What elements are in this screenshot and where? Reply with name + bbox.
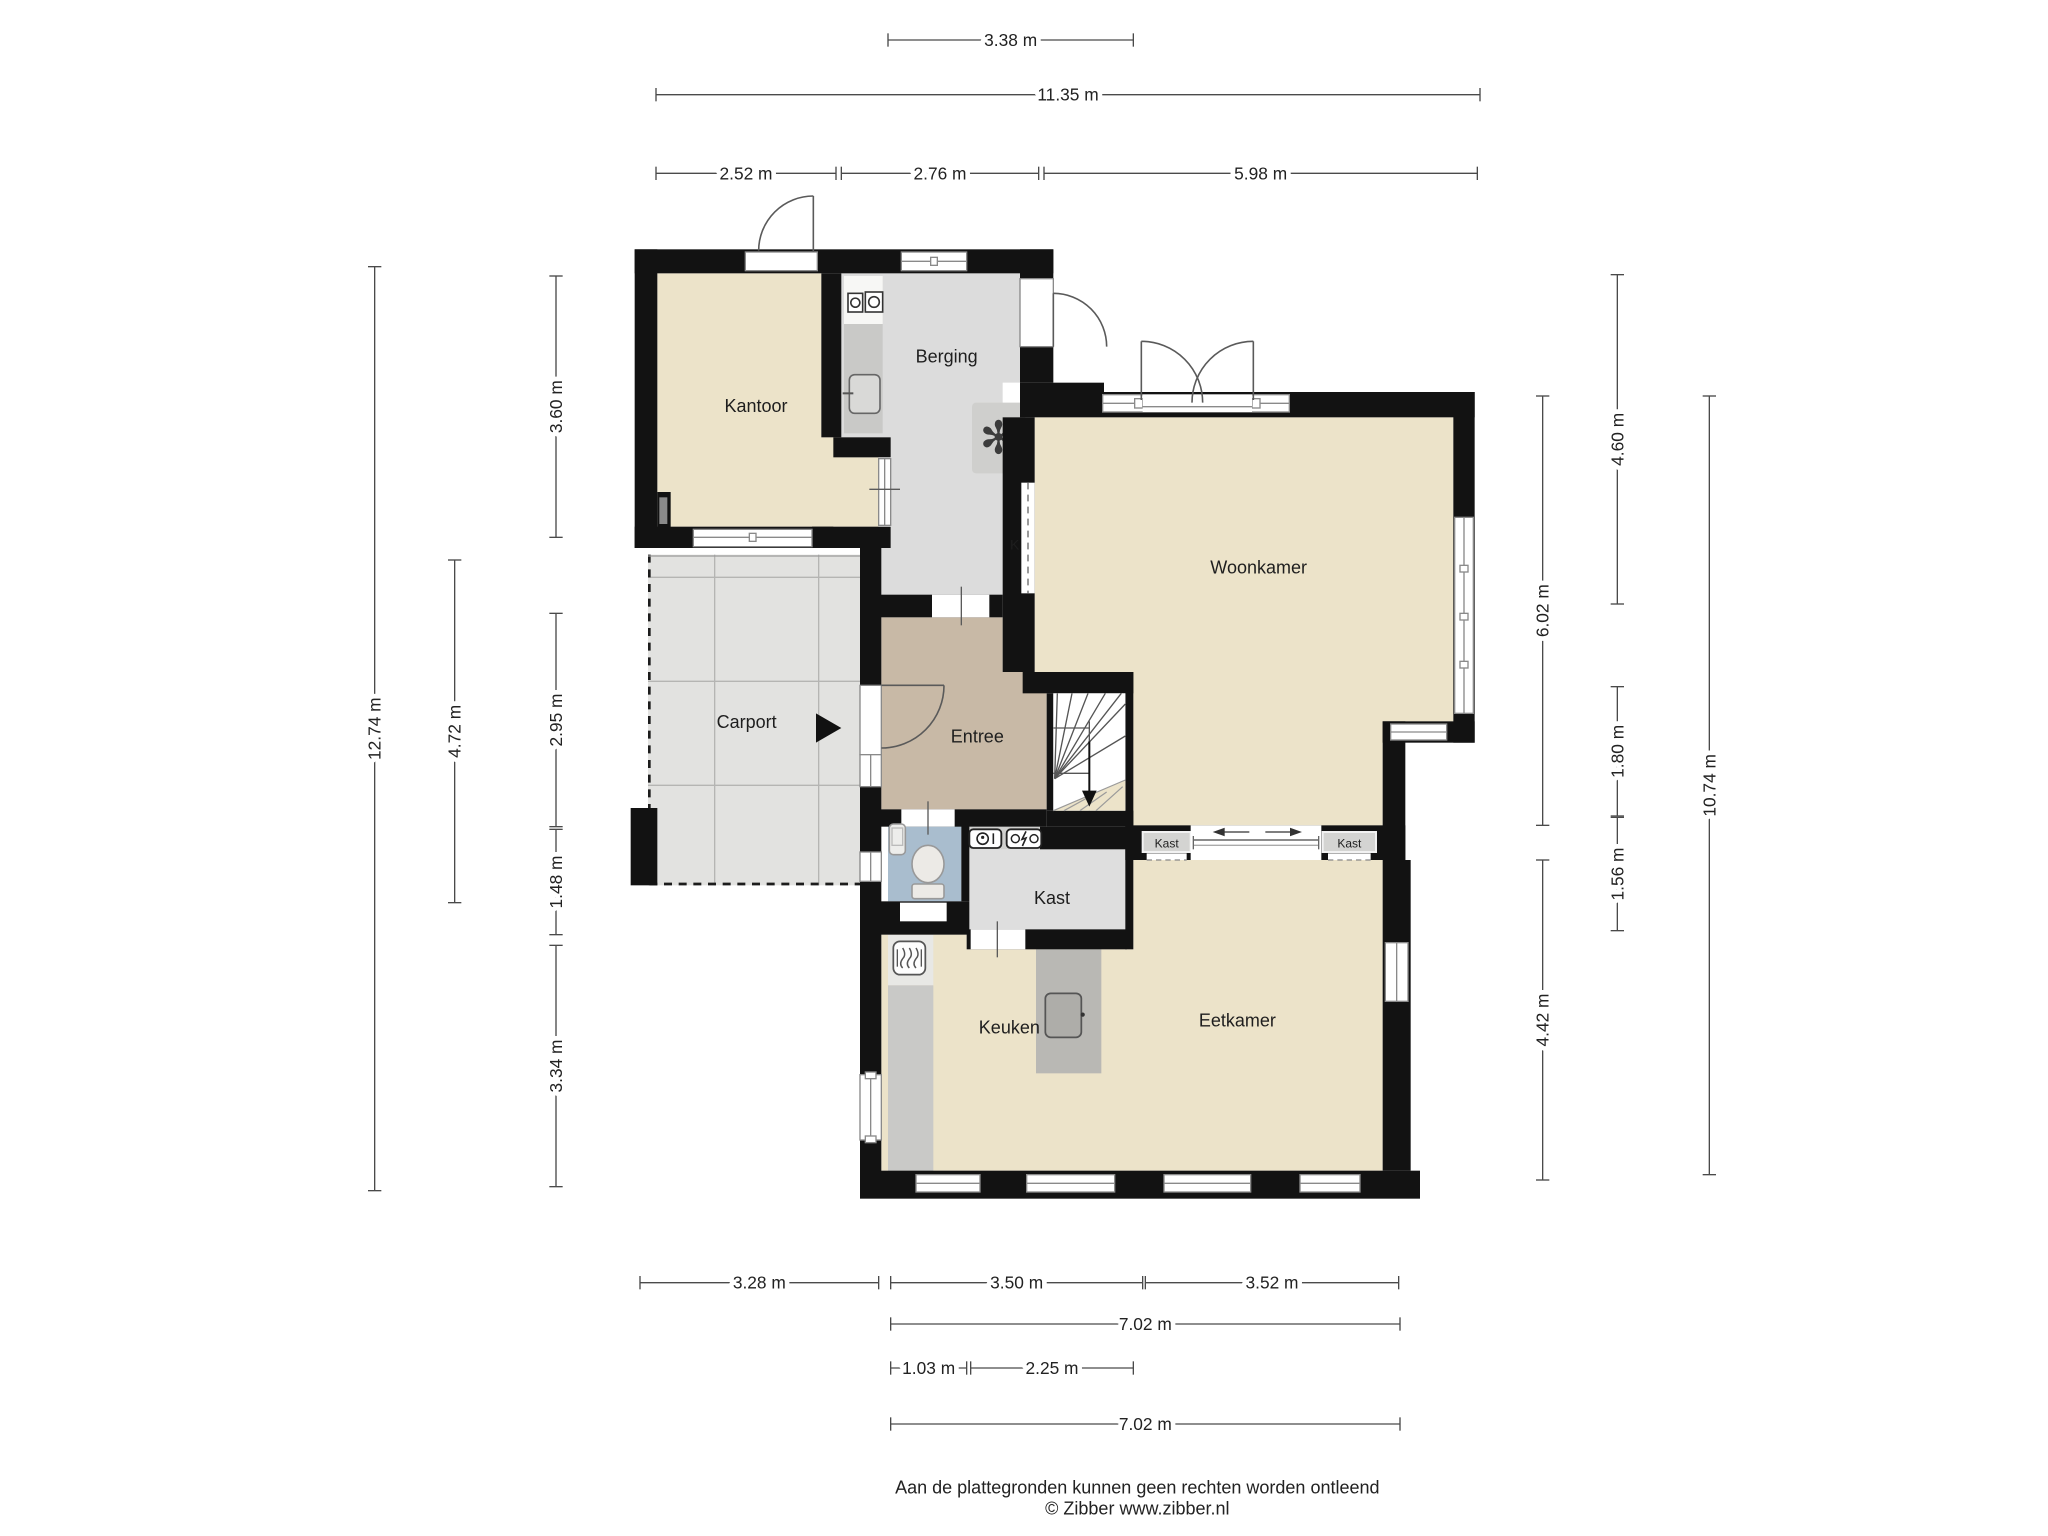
eetkamer-east-window — [1385, 943, 1408, 1002]
wall-woonkamer-top-left — [1020, 383, 1104, 418]
washer-icon — [848, 293, 863, 312]
footer-disclaimer: Aan de plattegronden kunnen geen rechten… — [895, 1477, 1379, 1497]
wall-left-kantoor — [635, 249, 658, 548]
footer-copyright: © Zibber www.zibber.nl — [1045, 1499, 1229, 1519]
wall-block-southeast-kantoor — [812, 527, 891, 548]
dimension-label: 2.76 m — [914, 163, 967, 183]
entree-label: Entree — [951, 727, 1004, 747]
eetkamer-south-window — [1164, 1175, 1251, 1192]
keuken-west-window — [860, 1072, 881, 1143]
kast-niche-right-label: Kast — [1337, 836, 1362, 850]
woonkamer-label: Woonkamer — [1210, 557, 1307, 577]
dimension-label: 4.60 m — [1607, 413, 1627, 466]
dimension-label: 3.28 m — [733, 1273, 786, 1293]
kast-niche-left-label: Kast — [1155, 836, 1180, 850]
dimension-label: 7.02 m — [1119, 1314, 1172, 1334]
front-sidelight-window — [860, 755, 881, 787]
kantoor-south-window — [693, 529, 812, 546]
wall-stairs-left — [1047, 693, 1054, 810]
dimension-label: 3.52 m — [1246, 1273, 1299, 1293]
dimension-label: 7.02 m — [1119, 1414, 1172, 1434]
k-closet-label: K — [1010, 536, 1020, 552]
dimension-label: 4.72 m — [445, 705, 465, 758]
staircase — [1053, 693, 1125, 810]
dimension-label: 11.35 m — [1037, 85, 1098, 105]
k-closet-hatch — [1021, 483, 1034, 594]
wall-jog — [833, 437, 890, 457]
dimension-label: 1.56 m — [1607, 848, 1627, 901]
kast-niche-left: Kast — [1143, 832, 1191, 860]
keuken-south-window-2 — [1027, 1175, 1115, 1192]
toilet-west-window — [860, 852, 881, 881]
carport-label: Carport — [717, 712, 777, 732]
toilet-south-niche — [900, 903, 947, 922]
wall-toilet-right — [961, 820, 969, 901]
floor-plan: ✻ — [0, 0, 2048, 1536]
dryer-icon — [865, 292, 882, 312]
woonkamer-east-window — [1455, 517, 1474, 713]
keuken-south-window — [916, 1175, 980, 1192]
sliding-door — [1191, 825, 1322, 860]
keuken-counter — [888, 985, 933, 1172]
dimension-label: 4.42 m — [1533, 994, 1553, 1047]
carport-pillar — [631, 808, 658, 885]
wall-stairs-bottom — [1047, 811, 1134, 827]
stove-icon — [1045, 993, 1084, 1037]
wall-stairs-top — [1023, 672, 1134, 693]
wall-niche-block — [1040, 827, 1127, 850]
wall-kantoor-berging — [821, 273, 841, 437]
kantoor-label: Kantoor — [724, 396, 787, 416]
dimension-label: 3.50 m — [990, 1273, 1043, 1293]
dimension-label: 12.74 m — [365, 697, 385, 760]
eetkamer-label: Eetkamer — [1199, 1011, 1276, 1031]
dimension-label: 1.03 m — [902, 1358, 955, 1378]
heater-icon — [893, 941, 925, 974]
dimension-label: 3.34 m — [546, 1040, 566, 1093]
dimension-label: 5.98 m — [1234, 163, 1287, 183]
dimension-label: 2.95 m — [546, 694, 566, 747]
woonkamer-south-window — [1391, 724, 1447, 740]
kantoor-pillar-inset — [659, 497, 667, 524]
dimension-label: 3.38 m — [984, 30, 1037, 50]
kast-room-label: Kast — [1034, 888, 1070, 908]
dimension-label: 3.60 m — [546, 380, 566, 433]
wall-eetkamer-right — [1383, 860, 1411, 1171]
berging-top-window — [901, 252, 966, 271]
wall-top — [635, 249, 1054, 273]
dimension-label: 10.74 m — [1699, 754, 1719, 817]
dimension-label: 6.02 m — [1533, 584, 1553, 637]
electric-meter-icon — [1007, 829, 1042, 848]
toilet-icon — [912, 845, 944, 898]
dimension-label: 2.25 m — [1026, 1358, 1079, 1378]
dimension-label: 1.80 m — [1607, 725, 1627, 778]
keuken-label: Keuken — [979, 1017, 1040, 1037]
kast-niche-right: Kast — [1323, 832, 1376, 860]
dimension-label: 1.48 m — [546, 856, 566, 909]
eetkamer-south-window-2 — [1300, 1175, 1360, 1192]
berging-label: Berging — [916, 347, 978, 367]
dimension-label: 2.52 m — [720, 163, 773, 183]
water-meter-icon — [969, 829, 1001, 848]
